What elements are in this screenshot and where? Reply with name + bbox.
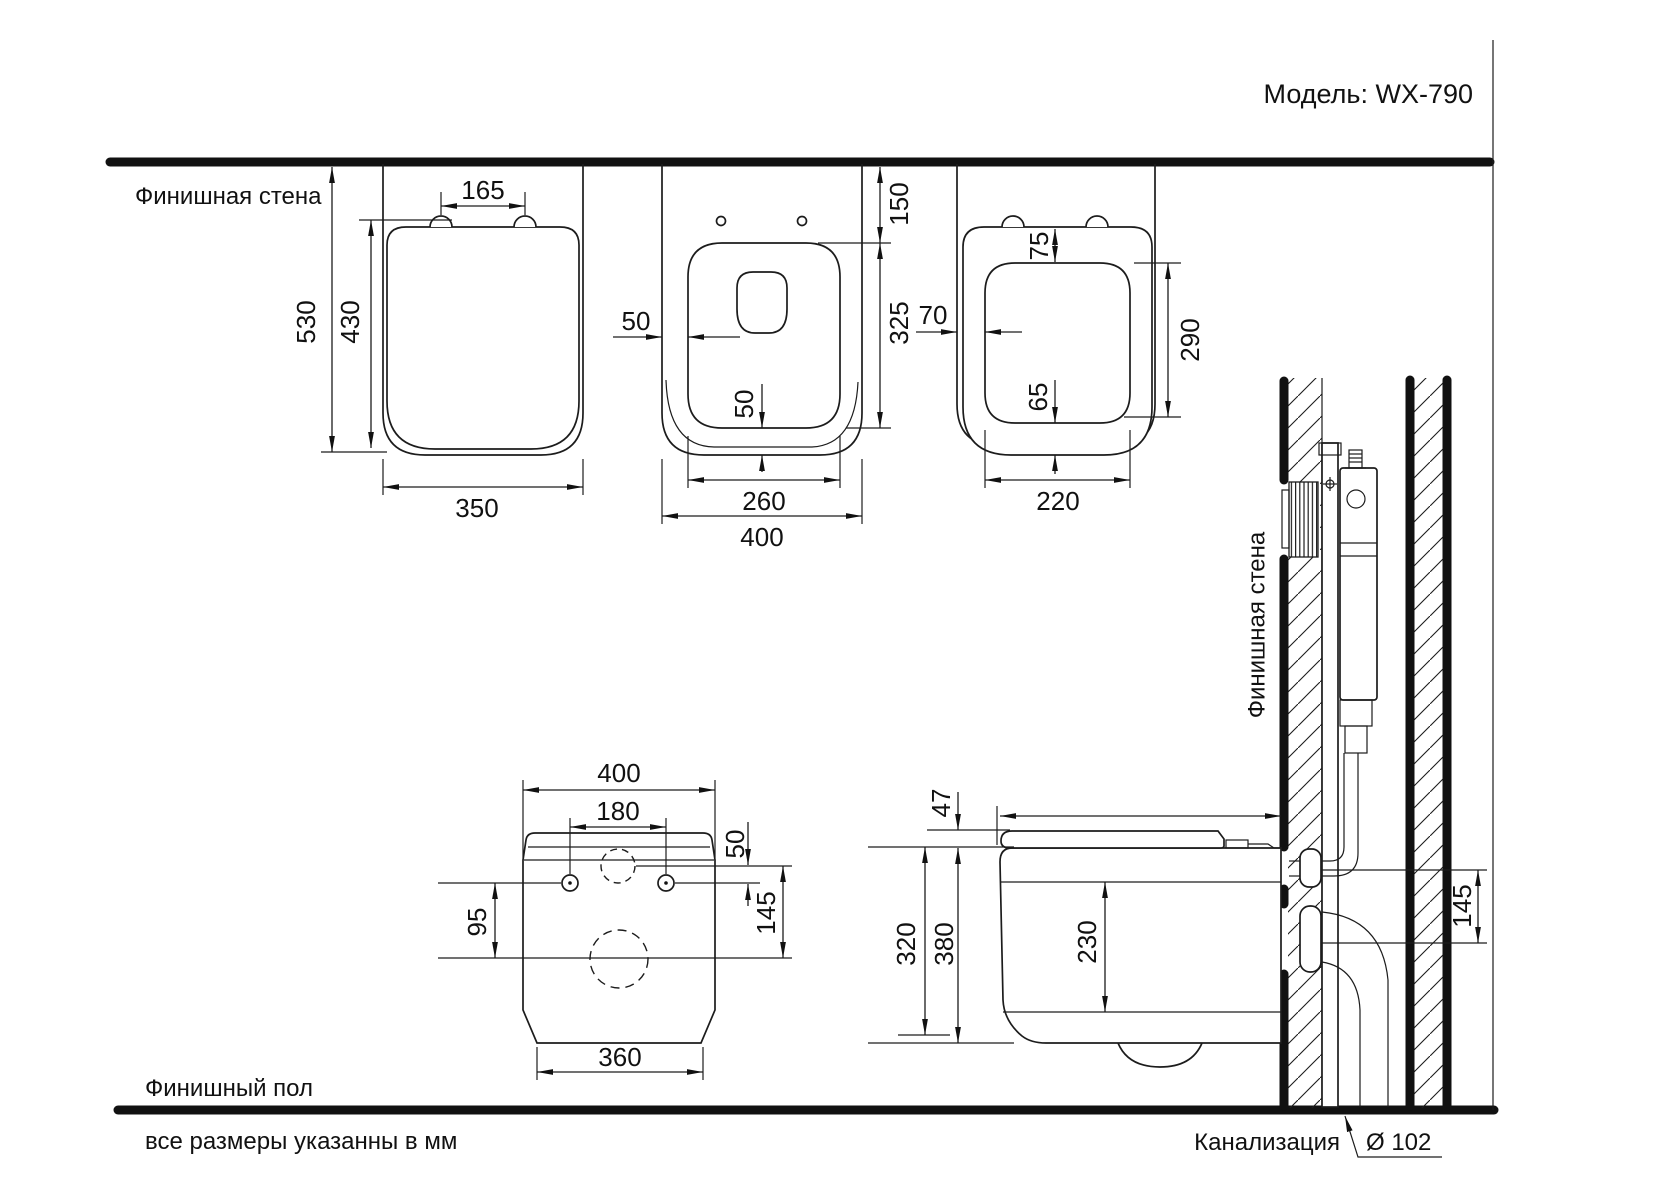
- technical-drawing-page: Модель: WX-790 Финишная стена Финишный п…: [0, 0, 1680, 1187]
- svg-text:50: 50: [622, 306, 651, 336]
- lid-hinge-bump-right: [514, 216, 536, 227]
- svg-text:165: 165: [461, 175, 504, 205]
- seat-hinge-bump-right: [1086, 216, 1108, 227]
- hinge-cap: [1226, 840, 1248, 848]
- svg-text:95: 95: [462, 908, 492, 937]
- finished-wall-label: Финишная стена: [135, 183, 322, 210]
- svg-text:50: 50: [720, 830, 750, 859]
- svg-text:260: 260: [742, 486, 785, 516]
- sewer-label: Канализация: [1194, 1129, 1340, 1156]
- dim-width-350: 350: [383, 459, 583, 523]
- dim-rim-gap-50-left: 50: [613, 306, 740, 337]
- dim-bolt-spacing-180: 180: [570, 796, 666, 874]
- svg-text:400: 400: [740, 522, 783, 552]
- corrugated-connector: [1282, 482, 1320, 557]
- svg-text:320: 320: [891, 922, 921, 965]
- finished-wall-vertical-label: Финишная стена: [1243, 531, 1270, 718]
- bowl-hole: [737, 272, 787, 333]
- drain-outlet-dashed: [590, 930, 648, 988]
- side-body: [1000, 848, 1281, 1043]
- dim-pipe-spacing-145: 145: [1322, 870, 1487, 943]
- svg-text:145: 145: [1447, 884, 1477, 927]
- dim-total-height-380: 380: [868, 866, 1014, 1043]
- seat-bolt-hole-left: [717, 217, 726, 226]
- sewer-callout: Канализация Ø 102: [1194, 1116, 1442, 1157]
- finished-floor-label: Финишный пол: [145, 1075, 313, 1102]
- toilet-installation-drawing: Модель: WX-790 Финишная стена Финишный п…: [0, 0, 1680, 1187]
- svg-text:180: 180: [596, 796, 639, 826]
- dim-gap-front-75: 75: [1024, 229, 1055, 262]
- in-wall-frame: [1319, 443, 1388, 1107]
- concealed-cistern: [1340, 468, 1377, 700]
- seat-bolt-hole-right: [798, 217, 807, 226]
- supply-stub: [1300, 849, 1321, 887]
- svg-text:360: 360: [598, 1042, 641, 1072]
- svg-text:50: 50: [729, 390, 759, 419]
- svg-text:145: 145: [751, 891, 781, 934]
- side-lid: [1001, 831, 1281, 848]
- second-wall-hatch: [1414, 378, 1443, 1108]
- svg-text:65: 65: [1023, 383, 1053, 412]
- svg-text:150: 150: [884, 182, 914, 225]
- svg-text:220: 220: [1036, 486, 1079, 516]
- svg-text:430: 430: [335, 300, 365, 343]
- dim-inlet-offset-50: 50: [720, 822, 750, 906]
- view-back: 400 180 50 95 145 360: [438, 758, 792, 1080]
- svg-text:230: 230: [1072, 920, 1102, 963]
- svg-text:400: 400: [597, 758, 640, 788]
- svg-text:350: 350: [455, 493, 498, 523]
- dim-wall-to-seat-150: 150: [818, 167, 914, 243]
- view-bowl-top: 50 150 325 50 260 400: [613, 164, 914, 552]
- drawing-title: Модель: WX-790: [1264, 79, 1473, 109]
- dim-base-width-360: 360: [537, 1042, 703, 1080]
- dim-seat-stack-47: 47: [868, 789, 1014, 866]
- svg-text:290: 290: [1175, 318, 1205, 361]
- frame-rail: [1322, 443, 1338, 1107]
- svg-text:530: 530: [291, 300, 321, 343]
- svg-text:380: 380: [929, 922, 959, 965]
- dim-seat-width-260: 260: [688, 436, 840, 516]
- drain-bulge: [1118, 1043, 1202, 1067]
- water-inlet-dashed: [601, 849, 635, 883]
- drain-stub: [1300, 906, 1321, 972]
- svg-text:47: 47: [926, 789, 956, 818]
- sewer-diameter-label: Ø 102: [1366, 1129, 1431, 1156]
- dim-bolts-to-drain-95: 95: [462, 883, 495, 958]
- svg-text:70: 70: [919, 300, 948, 330]
- dim-hinge-spacing-165: 165: [441, 175, 525, 215]
- svg-text:75: 75: [1024, 232, 1054, 261]
- dim-inlet-to-drain-145: 145: [751, 866, 783, 958]
- lid-hinge-bump-left: [430, 216, 452, 227]
- cistern-screw: [1345, 450, 1366, 468]
- flush-valve-block: [1340, 700, 1372, 726]
- svg-text:325: 325: [884, 301, 914, 344]
- view-seat-top: 75 70 65 290 220: [916, 164, 1205, 516]
- units-note-label: все размеры указанны в мм: [145, 1128, 457, 1155]
- view-lid-closed-top: 165 530 430 350: [291, 164, 583, 523]
- seat-hinge-bump-left: [1002, 216, 1024, 227]
- view-side: 47 320 380 230 145: [868, 789, 1487, 1067]
